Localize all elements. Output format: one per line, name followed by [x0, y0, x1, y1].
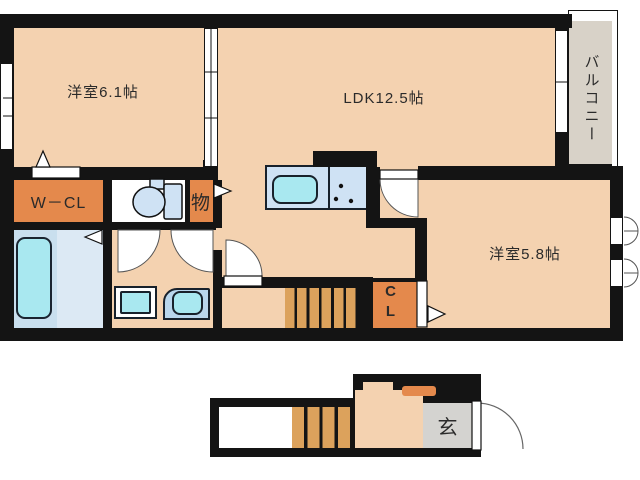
toilet-room	[112, 180, 185, 222]
kitchen-sink	[272, 175, 318, 204]
wcl-label: W－CL	[14, 191, 103, 211]
closet-label-l: L	[381, 302, 401, 320]
window-bedroom2-lower	[610, 259, 623, 287]
wall-top	[0, 14, 572, 28]
wall-landing	[222, 277, 373, 288]
ldk-label: LDK12.5帖	[324, 88, 444, 106]
wall-under-row	[0, 222, 216, 230]
wall-stair-closet	[358, 277, 373, 328]
wall-kitchen-chunk	[313, 151, 377, 167]
wall-wcl-toilet	[103, 180, 112, 222]
closet-label-c: C	[381, 282, 401, 300]
wall-bedroom2-left	[415, 228, 427, 282]
kitchen-divider	[328, 167, 330, 208]
entrance-label: 玄	[432, 408, 464, 442]
staircase-1f	[292, 407, 353, 448]
casement-window-arcs	[624, 217, 638, 287]
wall-bath-washroom	[103, 230, 112, 328]
storage-label: 物	[187, 188, 215, 214]
staircase-2f	[285, 288, 358, 328]
bathtub	[16, 237, 52, 319]
wall-under-bedroom1	[0, 167, 213, 180]
balcony-label: バルコニー	[570, 34, 612, 164]
floor-plan: 洋室6.1帖 LDK12.5帖 バルコニー W－CL 物 洋室5.8帖 C L …	[0, 0, 640, 480]
wall-bottom	[0, 328, 623, 341]
entrance-door-arc	[477, 403, 523, 449]
wall-balcony-corner	[568, 164, 612, 180]
entry-hall-bump	[363, 382, 393, 391]
entry-hall-floor	[355, 390, 423, 448]
window-left	[0, 63, 13, 150]
vanity-bowl	[172, 291, 203, 315]
shoe-step	[402, 386, 436, 396]
window-balcony	[555, 30, 568, 133]
bedroom1-label: 洋室6.1帖	[43, 82, 163, 100]
wall-hall-top	[366, 218, 427, 228]
window-bedroom2-upper	[610, 217, 623, 245]
washing-machine	[120, 291, 151, 314]
window-partition	[204, 28, 218, 167]
bathroom-floor	[57, 230, 103, 328]
entry-void	[219, 407, 292, 448]
bedroom2-label: 洋室5.8帖	[465, 244, 585, 262]
wall-right	[610, 166, 623, 341]
wall-washroom-right	[213, 250, 222, 328]
